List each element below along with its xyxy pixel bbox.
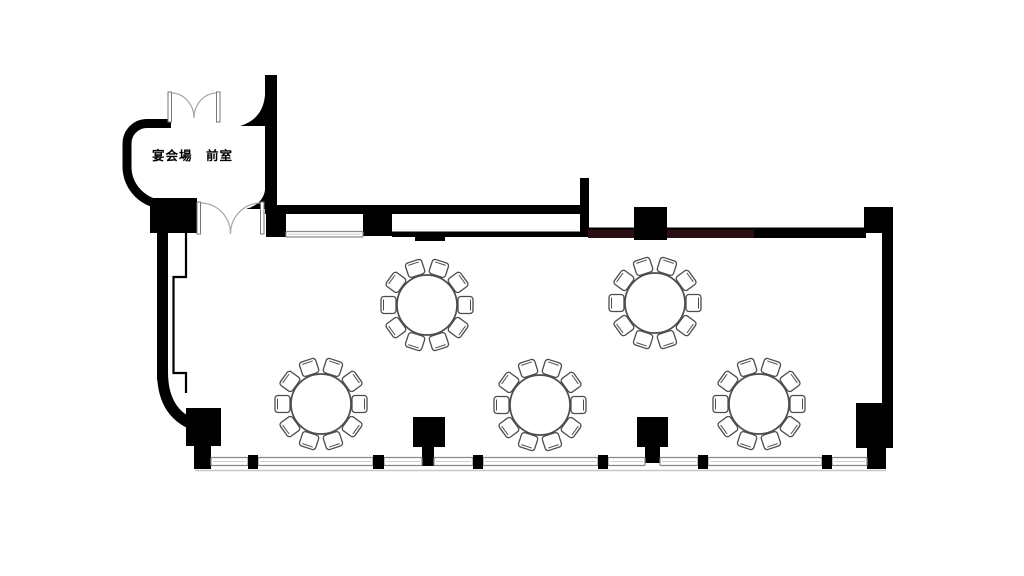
double-door bbox=[168, 92, 220, 122]
wall-stub-top bbox=[580, 178, 589, 232]
banquet-table-group bbox=[275, 358, 367, 451]
banquet-tables bbox=[275, 257, 805, 452]
pillar bbox=[634, 207, 667, 240]
banquet-table-group bbox=[381, 259, 473, 352]
pillar bbox=[856, 403, 893, 448]
round-table bbox=[729, 374, 789, 434]
pillar bbox=[422, 447, 434, 466]
banquet-table-group bbox=[494, 359, 586, 452]
chair bbox=[352, 396, 367, 413]
pillar bbox=[645, 447, 660, 463]
anteroom-wall bbox=[127, 124, 178, 205]
chair bbox=[609, 295, 624, 312]
chair bbox=[713, 396, 728, 413]
door-swing-arc bbox=[172, 93, 195, 118]
hall-top-wall-notch bbox=[415, 236, 445, 241]
floor-plan-page: 宴会場 前室 bbox=[0, 0, 1024, 576]
room-label: 宴会場 前室 bbox=[152, 148, 233, 163]
chair bbox=[790, 396, 805, 413]
door-leaf bbox=[168, 92, 172, 122]
window-mullion bbox=[473, 455, 483, 469]
pillar bbox=[867, 448, 886, 469]
pillar bbox=[186, 408, 221, 446]
round-table bbox=[397, 275, 457, 335]
wall-fillet-top bbox=[240, 95, 265, 126]
chair bbox=[275, 396, 290, 413]
pillar bbox=[637, 417, 668, 447]
pillar bbox=[363, 209, 392, 236]
left-wall bbox=[157, 230, 168, 380]
door-swing-arc bbox=[194, 93, 217, 118]
door-leaf bbox=[197, 202, 201, 234]
window-mullion bbox=[373, 455, 384, 469]
banquet-table-group bbox=[609, 257, 701, 350]
pillar bbox=[266, 213, 286, 237]
banquet-hall-floor-plan: 宴会場 前室 bbox=[0, 0, 1024, 576]
banquet-table-group bbox=[713, 358, 805, 451]
chair bbox=[571, 397, 586, 414]
window-mullion bbox=[248, 455, 258, 469]
pillar bbox=[150, 198, 197, 233]
right-wall bbox=[882, 233, 893, 405]
corridor-vertical-wall bbox=[265, 75, 277, 214]
round-table bbox=[510, 375, 570, 435]
door-leaf bbox=[261, 202, 265, 234]
left-wall-inner-face bbox=[174, 233, 187, 393]
window-mullion bbox=[822, 455, 832, 469]
pillar bbox=[413, 417, 445, 447]
chair bbox=[381, 297, 396, 314]
window-mullion bbox=[598, 455, 608, 469]
corridor-wall bbox=[265, 205, 588, 214]
chair bbox=[686, 295, 701, 312]
round-table bbox=[625, 273, 685, 333]
chair bbox=[494, 397, 509, 414]
window-mullion bbox=[698, 455, 708, 469]
door-swing-arc bbox=[201, 203, 231, 234]
hall-top-wall-right bbox=[754, 228, 866, 239]
pillar bbox=[864, 207, 893, 233]
chair bbox=[458, 297, 473, 314]
round-table bbox=[291, 374, 351, 434]
pillar bbox=[194, 446, 211, 469]
door-leaf bbox=[217, 92, 221, 122]
